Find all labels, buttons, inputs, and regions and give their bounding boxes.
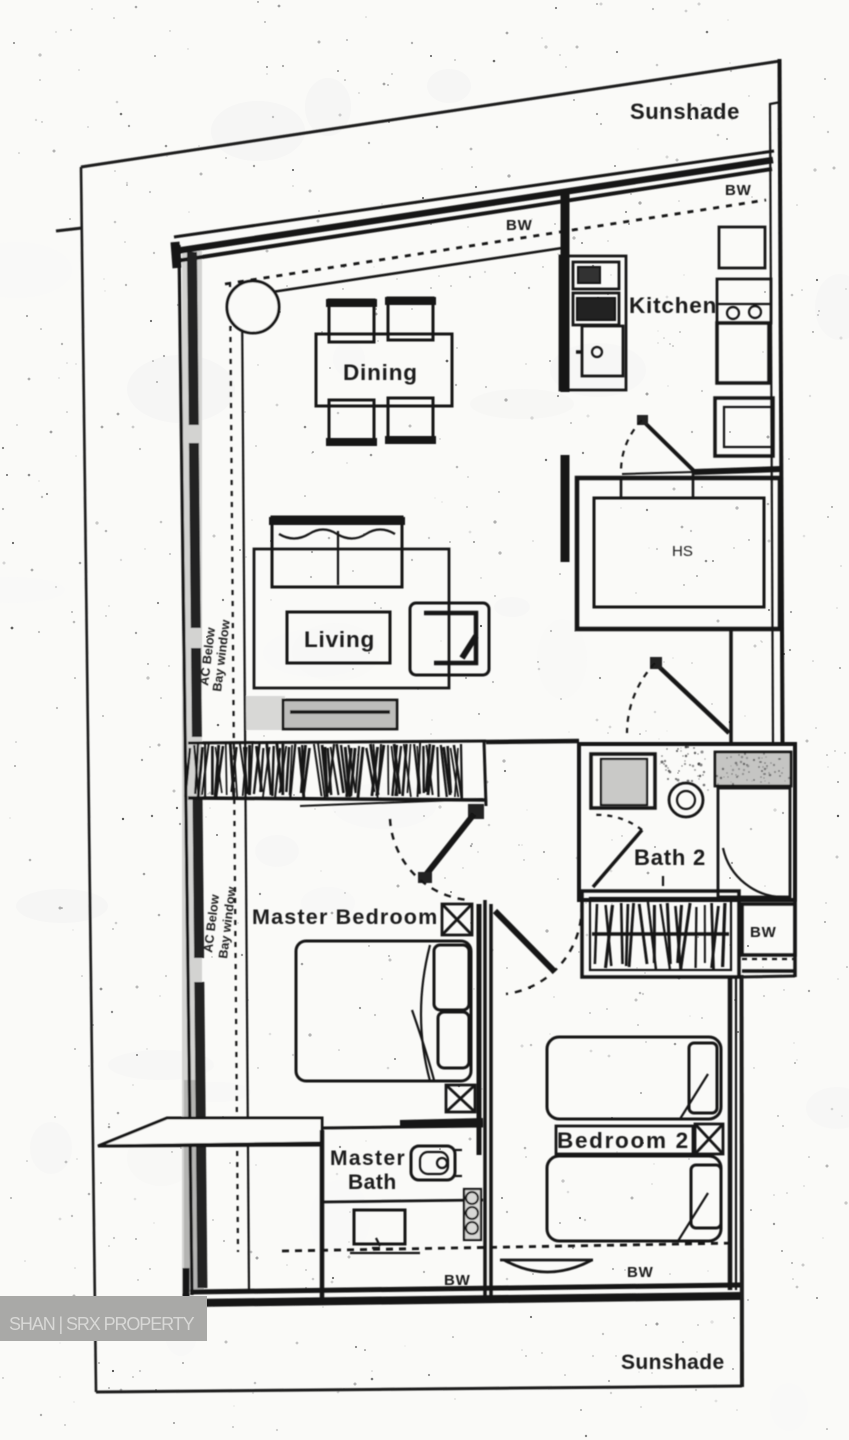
svg-text:Master: Master	[330, 1147, 406, 1170]
svg-text:Dining: Dining	[343, 360, 418, 385]
svg-text:Bedroom 2: Bedroom 2	[557, 1128, 690, 1153]
svg-text:Master Bedroom: Master Bedroom	[252, 905, 438, 929]
svg-text:BW: BW	[506, 217, 533, 234]
svg-text:Kitchen: Kitchen	[629, 293, 717, 318]
svg-text:BW: BW	[725, 182, 752, 199]
svg-text:Bath 2: Bath 2	[634, 845, 706, 870]
svg-text:Living: Living	[304, 627, 375, 652]
svg-text:SHAN | SRX PROPERTY: SHAN | SRX PROPERTY	[9, 1314, 195, 1334]
svg-text:BW: BW	[750, 924, 777, 941]
svg-text:Bath: Bath	[348, 1171, 397, 1194]
svg-text:Sunshade: Sunshade	[630, 99, 740, 124]
svg-text:BW: BW	[444, 1272, 471, 1289]
svg-text:BW: BW	[627, 1264, 654, 1281]
svg-text:HS: HS	[672, 543, 693, 560]
svg-text:Sunshade: Sunshade	[621, 1351, 725, 1374]
